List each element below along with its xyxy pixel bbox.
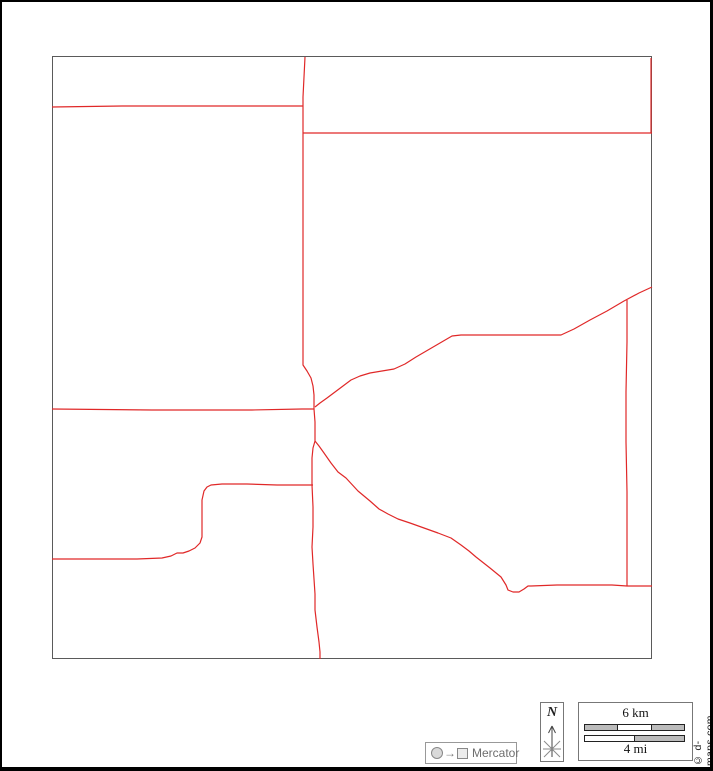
scale-bar-segment [585, 725, 617, 730]
scale-km-label: 6 km [579, 705, 692, 721]
projection-badge: → Mercator [425, 742, 517, 764]
north-compass-icon [541, 721, 563, 761]
scale-bar-segment [617, 725, 650, 730]
scale-mi-label: 4 mi [579, 741, 692, 757]
copyright-text: © d-maps.com [696, 690, 712, 766]
scale-bar-segment [651, 725, 684, 730]
map-page: N 6 km 4 mi © d-maps.com → Mercator [0, 0, 713, 771]
scale-box: 6 km 4 mi [578, 702, 693, 761]
km-scale-bar [584, 724, 685, 731]
plane-icon [457, 748, 468, 759]
north-indicator-box: N [540, 702, 564, 762]
north-label: N [547, 705, 557, 721]
projection-arrow-icon: → [444, 748, 456, 758]
map-frame [52, 56, 652, 659]
sphere-icon [431, 747, 443, 759]
projection-label: Mercator [472, 746, 519, 760]
